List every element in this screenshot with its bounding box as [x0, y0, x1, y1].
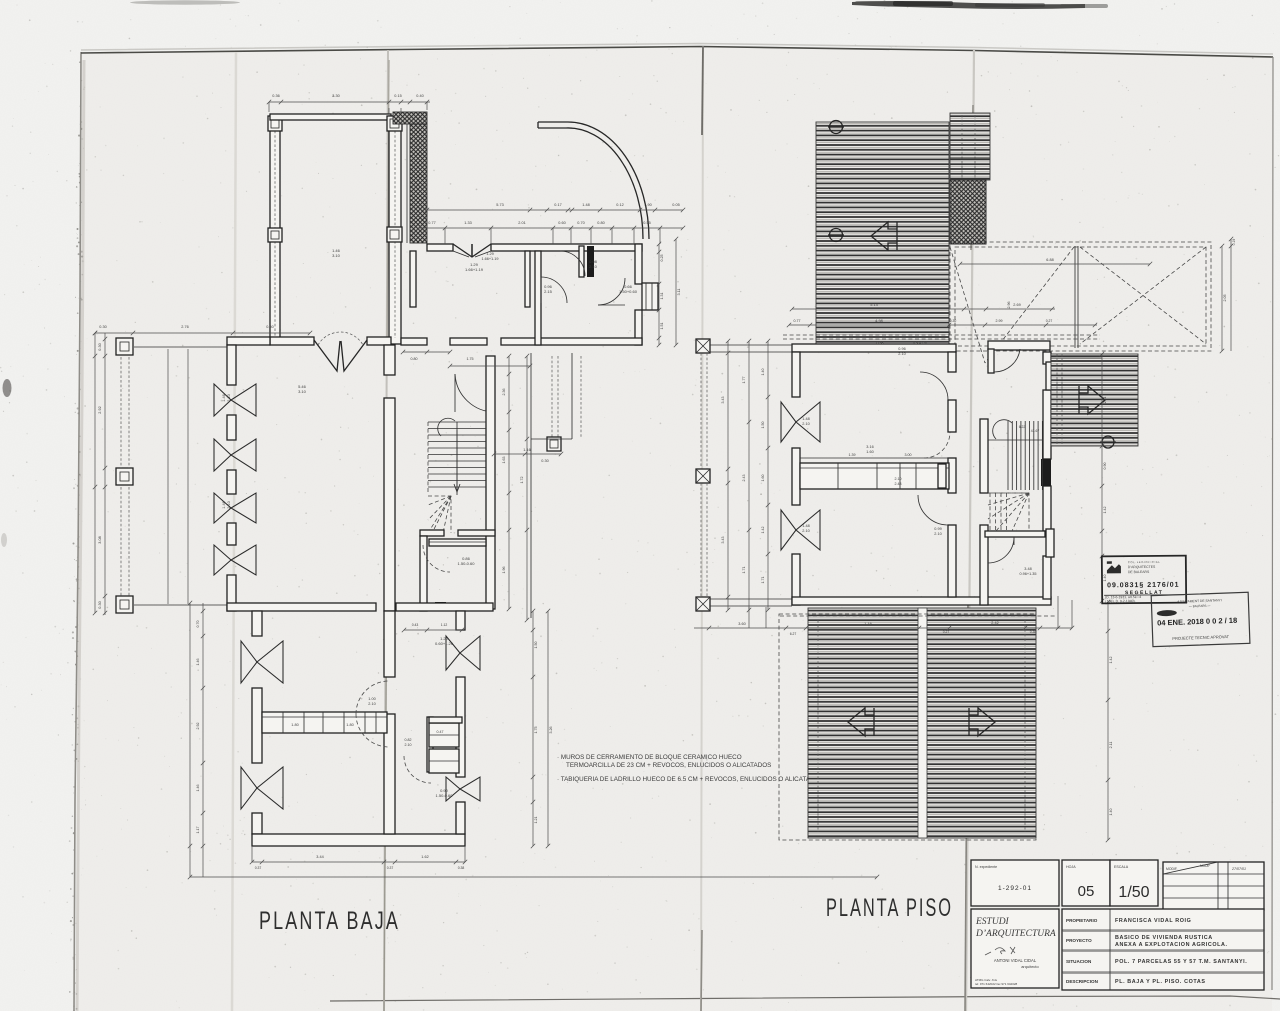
svg-text:0.25: 0.25	[660, 255, 664, 262]
svg-text:1.46: 1.46	[222, 394, 226, 401]
svg-text:1.77: 1.77	[742, 377, 746, 384]
svg-text:tel: 971 642022 fax 971 64202: tel: 971 642022 fax 971 642028	[975, 982, 1018, 986]
svg-text:0.36: 0.36	[272, 94, 279, 98]
svg-text:0.30-0.26: 0.30-0.26	[913, 341, 927, 345]
svg-text:1.40: 1.40	[761, 369, 765, 376]
svg-text:05: 05	[1078, 883, 1095, 900]
svg-text:1.60: 1.60	[761, 475, 765, 482]
svg-text:2.43: 2.43	[742, 475, 746, 482]
svg-text:3.48: 3.48	[1024, 567, 1031, 571]
svg-text:0.30: 0.30	[98, 601, 102, 608]
svg-text:ANTONI VIDAL CIDAL: ANTONI VIDAL CIDAL	[994, 958, 1037, 963]
svg-text:C O L · L E G I O F I C I A: C O L · L E G I O F I C I A L	[1128, 560, 1160, 564]
svg-text:2.76: 2.76	[181, 325, 188, 329]
svg-text:0.12: 0.12	[616, 203, 623, 207]
svg-text:0.30: 0.30	[98, 343, 102, 350]
svg-text:0.98: 0.98	[877, 341, 884, 345]
svg-text:0.70: 0.70	[577, 221, 584, 225]
svg-text:ESCALA: ESCALA	[1114, 865, 1129, 869]
svg-text:3.30: 3.30	[332, 94, 339, 98]
svg-text:FRANCISCA VIDAL ROIG: FRANCISCA VIDAL ROIG	[1115, 918, 1191, 924]
svg-text:0.27: 0.27	[1046, 319, 1053, 323]
svg-text:1.66+1.19: 1.66+1.19	[482, 257, 499, 261]
svg-text:1.90: 1.90	[644, 203, 651, 207]
svg-text:1.42: 1.42	[761, 527, 765, 534]
svg-text:2.10: 2.10	[227, 394, 231, 401]
svg-text:· MUROS DE CERRAMIENTO DE BLO: · MUROS DE CERRAMIENTO DE BLOQUE CERAMIC…	[557, 754, 742, 761]
svg-text:3.16: 3.16	[866, 445, 873, 449]
svg-text:1.75: 1.75	[467, 357, 474, 361]
svg-text:1.72: 1.72	[520, 477, 524, 484]
svg-text:0.99: 0.99	[934, 527, 941, 531]
svg-text:2.10: 2.10	[802, 422, 809, 426]
svg-text:1.80: 1.80	[291, 723, 298, 727]
svg-text:2.10: 2.10	[802, 529, 809, 533]
svg-text:0.30: 0.30	[950, 319, 957, 323]
svg-text:DE BALEARS: DE BALEARS	[1128, 570, 1150, 574]
svg-text:1.46: 1.46	[196, 659, 200, 666]
svg-text:arquitecto: arquitecto	[1021, 964, 1039, 969]
svg-text:1.12: 1.12	[441, 623, 448, 627]
svg-text:1.50-0.60: 1.50-0.60	[436, 793, 454, 798]
svg-text:1.40: 1.40	[1103, 575, 1107, 582]
svg-text:09.0831§ 2176/01: 09.0831§ 2176/01	[1107, 582, 1180, 590]
svg-text:0.82: 0.82	[405, 738, 412, 742]
svg-text:1.42: 1.42	[1103, 507, 1107, 514]
svg-text:0.80: 0.80	[597, 221, 604, 225]
svg-text:N. expediente: N. expediente	[975, 865, 997, 869]
svg-text:3.43: 3.43	[721, 397, 725, 404]
svg-text:1-292-01: 1-292-01	[998, 885, 1032, 892]
svg-text:3.10: 3.10	[298, 389, 307, 394]
svg-text:2.36: 2.36	[502, 389, 506, 396]
svg-text:POL. 7 PARCELAS 55 Y 57 T.M. S: POL. 7 PARCELAS 55 Y 57 T.M. SANTANYI.	[1115, 959, 1247, 965]
svg-text:2.96: 2.96	[1007, 302, 1011, 309]
svg-text:0.38: 0.38	[458, 866, 465, 870]
svg-text:0.47: 0.47	[437, 730, 444, 734]
svg-text:1.00: 1.00	[368, 697, 375, 701]
svg-text:DESCRIPCION: DESCRIPCION	[1066, 979, 1099, 984]
svg-text:3.08: 3.08	[98, 536, 102, 543]
svg-text:27/07/01: 27/07/01	[1231, 867, 1246, 871]
svg-text:0.77: 0.77	[428, 221, 435, 225]
svg-text:0.15: 0.15	[394, 94, 401, 98]
svg-text:· TABIQUERIA DE LADRILLO HUEC: · TABIQUERIA DE LADRILLO HUECO DE 6.5 CM…	[557, 776, 824, 783]
svg-text:6.88: 6.88	[1046, 258, 1053, 262]
svg-text:D’ARQUITECTURA: D’ARQUITECTURA	[975, 929, 1056, 939]
svg-text:1.80: 1.80	[346, 723, 353, 727]
svg-text:0.19: 0.19	[1232, 239, 1236, 246]
svg-text:1.29: 1.29	[486, 252, 493, 256]
svg-text:PROYECTO: PROYECTO	[1066, 938, 1092, 943]
svg-text:3.26: 3.26	[549, 727, 553, 734]
svg-text:2.69: 2.69	[1013, 303, 1020, 307]
svg-text:0.70: 0.70	[196, 621, 200, 628]
svg-text:1.62: 1.62	[421, 855, 428, 859]
svg-text:2.10: 2.10	[405, 743, 412, 747]
svg-text:0.38: 0.38	[1030, 630, 1037, 634]
svg-text:5.13: 5.13	[870, 303, 877, 307]
svg-text:PLANTA BAJA: PLANTA BAJA	[259, 907, 400, 935]
svg-text:2.10: 2.10	[227, 501, 231, 508]
svg-text:3.10: 3.10	[332, 253, 341, 258]
svg-text:BASICO DE VIVIENDA RUSTICA: BASICO DE VIVIENDA RUSTICA	[1115, 935, 1213, 941]
svg-text:1.33: 1.33	[464, 221, 471, 225]
svg-text:1.31: 1.31	[660, 293, 664, 300]
svg-text:1.50: 1.50	[761, 422, 765, 429]
svg-text:2.42: 2.42	[991, 621, 998, 625]
svg-text:1.66+1.19: 1.66+1.19	[465, 267, 484, 272]
svg-text:1.46: 1.46	[222, 501, 226, 508]
svg-text:SITUACION: SITUACION	[1066, 959, 1092, 964]
svg-text:0.80: 0.80	[411, 357, 418, 361]
svg-text:0.60+1.20: 0.60+1.20	[435, 641, 454, 646]
svg-text:1.50+0.60: 1.50+0.60	[619, 289, 638, 294]
svg-text:3.00: 3.00	[905, 453, 912, 457]
svg-text:1.96: 1.96	[502, 567, 506, 574]
svg-text:0.17: 0.17	[554, 203, 561, 207]
svg-text:3.60: 3.60	[738, 622, 745, 626]
svg-text:0.90: 0.90	[1103, 463, 1107, 470]
svg-text:2.92: 2.92	[98, 406, 102, 413]
svg-text:6.27: 6.27	[790, 632, 797, 636]
svg-text:4.98: 4.98	[875, 319, 882, 323]
svg-text:2.10: 2.10	[895, 477, 902, 481]
svg-text:0.30: 0.30	[541, 459, 548, 463]
svg-text:2.10: 2.10	[368, 702, 375, 706]
svg-text:1.16: 1.16	[864, 622, 871, 626]
svg-text:1.48: 1.48	[802, 417, 809, 421]
svg-text:1.40: 1.40	[1109, 809, 1113, 816]
svg-text:2.10: 2.10	[589, 264, 598, 269]
svg-text:0.55: 0.55	[643, 221, 650, 225]
svg-text:1.48: 1.48	[802, 524, 809, 528]
svg-text:1.39: 1.39	[849, 453, 856, 457]
svg-text:ANEXA A EXPLOTACION AGRICOLA.: ANEXA A EXPLOTACION AGRICOLA.	[1115, 942, 1228, 948]
svg-text:PROPIETARIO: PROPIETARIO	[1066, 918, 1098, 923]
svg-text:1.48: 1.48	[582, 203, 589, 207]
svg-text:1.46: 1.46	[196, 785, 200, 792]
svg-text:1.60: 1.60	[866, 450, 873, 454]
svg-text:PLANTA PISO: PLANTA PISO	[826, 894, 953, 922]
svg-text:1.50: 1.50	[534, 642, 538, 649]
svg-text:41.67: 41.67	[1031, 429, 1040, 433]
svg-text:0.50: 0.50	[266, 325, 273, 329]
svg-text:0.40: 0.40	[416, 94, 423, 98]
svg-text:2.10: 2.10	[898, 352, 905, 356]
svg-text:3.11: 3.11	[677, 289, 681, 296]
svg-text:PL. BAJA Y PL. PISO. COTAS: PL. BAJA Y PL. PISO. COTAS	[1115, 979, 1206, 985]
svg-text:MODIF: MODIF	[1200, 864, 1210, 868]
svg-text:D’ARQUITECTES: D’ARQUITECTES	[1128, 565, 1156, 569]
svg-text:0.37: 0.37	[387, 866, 394, 870]
svg-text:2.05: 2.05	[1223, 295, 1227, 302]
svg-text:i 19è), D. 9-2-1940).: i 19è), D. 9-2-1940).	[1105, 599, 1135, 603]
svg-text:3.43: 3.43	[721, 537, 725, 544]
svg-text:0.77: 0.77	[794, 319, 801, 323]
svg-text:1.51: 1.51	[660, 323, 664, 330]
svg-text:2.48: 2.48	[895, 482, 902, 486]
svg-text:2.10: 2.10	[934, 532, 941, 536]
svg-text:HOJA: HOJA	[1066, 865, 1076, 869]
svg-text:0.96: 0.96	[898, 347, 905, 351]
svg-text:1.71: 1.71	[742, 567, 746, 574]
svg-text:2.92: 2.92	[196, 723, 200, 730]
svg-text:TERMOARCILLA DE 23 CM + REVOCO: TERMOARCILLA DE 23 CM + REVOCOS, ENLUCID…	[566, 762, 771, 769]
svg-text:1.71: 1.71	[761, 577, 765, 584]
svg-text:5.73: 5.73	[496, 203, 503, 207]
svg-text:MODIF.: MODIF.	[1166, 867, 1178, 871]
svg-text:3.44: 3.44	[316, 855, 323, 859]
svg-text:0.43: 0.43	[412, 623, 419, 627]
svg-text:1.42: 1.42	[1109, 657, 1113, 664]
svg-text:— BALEARS —: — BALEARS —	[1189, 604, 1211, 609]
svg-text:2.11: 2.11	[1103, 397, 1107, 404]
svg-text:0.37: 0.37	[255, 866, 262, 870]
svg-text:1.63: 1.63	[502, 457, 506, 464]
svg-text:ESTUDI: ESTUDI	[975, 917, 1010, 927]
svg-text:0.30: 0.30	[99, 325, 106, 329]
svg-text:0.27: 0.27	[943, 630, 950, 634]
svg-text:2.11: 2.11	[1109, 742, 1113, 749]
svg-text:0.60: 0.60	[558, 221, 565, 225]
svg-text:0.05: 0.05	[672, 203, 679, 207]
svg-text:1.17: 1.17	[196, 827, 200, 834]
svg-text:6.22: 6.22	[1019, 425, 1026, 429]
svg-text:2.01: 2.01	[518, 221, 525, 225]
svg-text:1.50-0.60: 1.50-0.60	[458, 561, 476, 566]
svg-text:1.75: 1.75	[534, 727, 538, 734]
svg-text:1/50: 1/50	[1118, 884, 1149, 901]
svg-text:2.15: 2.15	[544, 289, 553, 294]
svg-text:0.96+1.35: 0.96+1.35	[1020, 572, 1037, 576]
svg-text:1.21: 1.21	[534, 817, 538, 824]
svg-text:2.99: 2.99	[996, 319, 1003, 323]
